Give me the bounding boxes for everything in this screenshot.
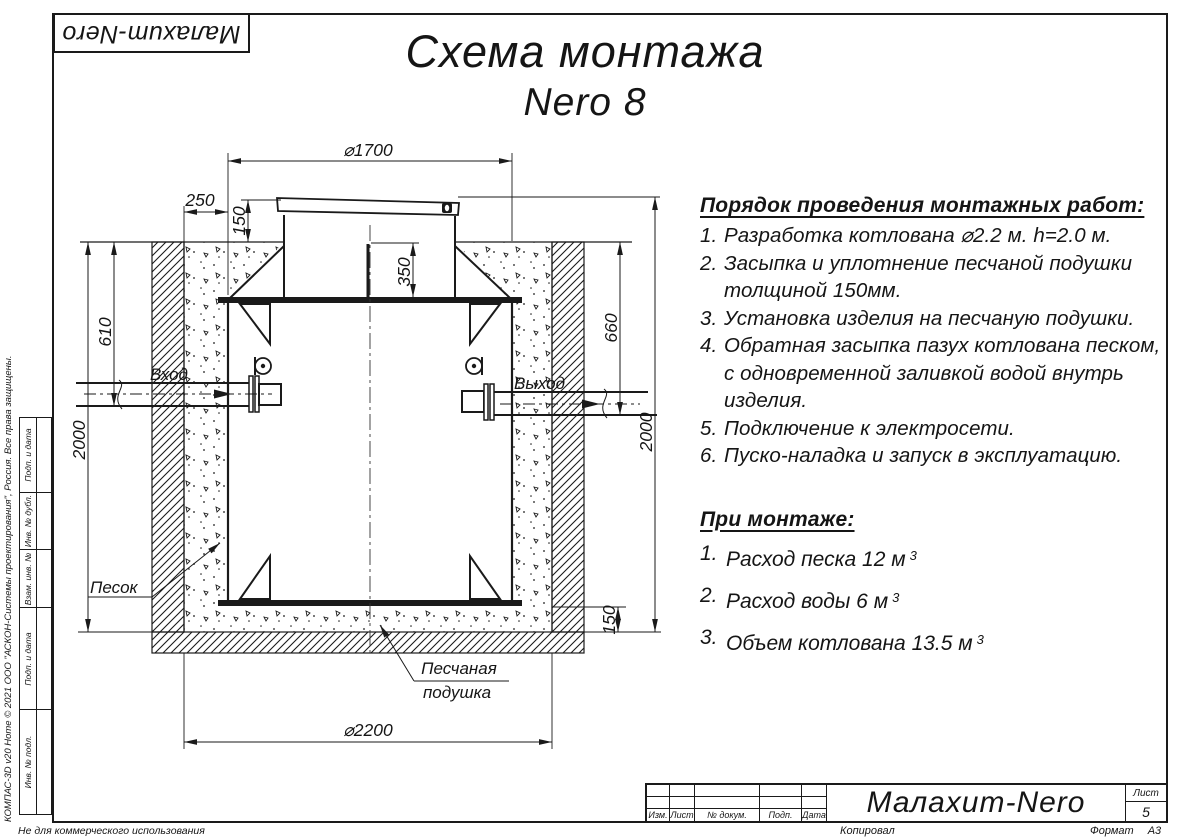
stamp-cell-label: Взам. инв. № [23,552,33,605]
format-note: ФорматА3 [1090,825,1161,837]
col-list: Лист [670,809,694,821]
step-text: с одновременной заливкой водой внутрь [724,360,1172,388]
mount-item-3: 3. Объем котлована 13.5 м3 [700,620,1172,662]
step-number: 6. [700,442,724,470]
step-item-3: 3. Установка изделия на песчаную подушки… [700,305,1172,333]
step-text: толщиной 150мм. [724,277,1172,305]
stamp-cell-label: Инв. № дубл. [23,495,33,547]
col-podp: Подп. [760,809,801,821]
mount-number: 3. [700,620,726,662]
format-value: А3 [1148,825,1161,837]
mount-text: Расход воды 6 м [726,590,888,613]
inlet-label: Вход [150,365,188,384]
sheet-label: Лист [1126,785,1166,802]
sand-label: Песок [90,578,139,597]
dim-neck-height: 150 [229,206,249,235]
stamp-cell: Подп. и дата [19,607,52,710]
mount-item-2: 2. Расход воды 6 м3 [700,578,1172,620]
product-designation: Малахит-Nero [827,785,1125,821]
stamp-cell: Инв. № подл. [19,709,52,815]
left-stamp-column: Подп. и дата Инв. № дубл. Взам. инв. № П… [19,418,52,815]
dim-cushion-thickness: 150 [599,605,619,634]
tank-cover [277,198,459,215]
format-label: Формат [1090,825,1134,837]
dim-inlet-depth: 610 [95,317,115,346]
mount-text: Объем котлована 13.5 м [726,632,973,655]
step-text: изделия. [724,387,1172,415]
tank-body [218,215,522,655]
mount-item-1: 1. Расход песка 12 м3 [700,536,1172,578]
col-data: Дата [802,809,826,821]
lifting-lugs [255,357,482,375]
cushion-label-line2: подушка [423,683,491,702]
sheet-cell: Лист 5 [1125,785,1166,821]
step-text: Подключение к электросети. [724,415,1172,443]
title-block: Изм. Лист № докум. Подп. Дата Малахит-Ne… [645,783,1168,823]
dim-outlet-depth: 660 [601,313,621,342]
col-docnum: № докум. [695,809,759,821]
dim-pit-depth-right: 2000 [636,412,656,452]
step-text: Разработка котлована ⌀2.2 м. h=2.0 м. [724,222,1172,250]
step-number: 3. [700,305,724,333]
cushion-label-line1: Песчаная [421,659,497,678]
mount-number: 2. [700,578,726,620]
dim-backfill-gap: 250 [184,190,214,210]
step-number: 2. [700,250,724,305]
step-number: 1. [700,222,724,250]
drawing-sheet: { "colors": {"ink": "#1a1a1a", "paper": … [0,0,1182,838]
title-block-revision-grid: Изм. Лист № докум. Подп. Дата [647,785,827,821]
non-commercial-note: Не для коммерческого использования [18,825,205,837]
step-number: 4. [700,332,724,415]
col-izm: Изм. [647,809,669,821]
copied-label: Копировал [840,825,895,837]
step-text: Установка изделия на песчаную подушки. [724,305,1172,333]
dim-neck-depth: 350 [394,257,414,286]
dim-pit-depth-left: 2000 [69,420,89,460]
stamp-cell-label: Подп. и дата [23,632,33,685]
instructions-column: Порядок проведения монтажных работ: 1. Р… [700,192,1172,662]
step-item-2: 2. Засыпка и уплотнение песчаной подушки… [700,250,1172,305]
step-item-6: 6. Пуско-наладка и запуск в эксплуатацию… [700,442,1172,470]
step-text: Обратная засыпка пазух котлована песком, [724,332,1172,360]
step-text: Засыпка и уплотнение песчаной подушки [724,250,1172,278]
mount-sup: 3 [910,548,917,563]
mount-number: 1. [700,536,726,578]
step-item-5: 5. Подключение к электросети. [700,415,1172,443]
stamp-cell-label: Подп. и дата [23,428,33,481]
stamp-cell: Подп. и дата [19,417,52,493]
stamp-cell: Инв. № дубл. [19,492,52,550]
step-text: Пуско-наладка и запуск в эксплуатацию. [724,442,1172,470]
mount-heading: При монтаже: [700,506,1172,534]
mount-sup: 3 [892,590,899,605]
mount-sup: 3 [977,632,984,647]
dim-pit-diameter: ⌀2200 [343,720,393,740]
stamp-cell: Взам. инв. № [19,549,52,608]
step-number: 5. [700,415,724,443]
cad-software-note: КОМПАС-3D v20 Home © 2021 ООО "АСКОН-Сис… [3,355,14,822]
step-item-4: 4. Обратная засыпка пазух котлована песк… [700,332,1172,415]
outlet-label: Выход [514,374,565,393]
dim-top-diameter: ⌀1700 [343,140,393,160]
sheet-number: 5 [1126,802,1166,821]
mount-text: Расход песка 12 м [726,548,906,571]
step-item-1: 1. Разработка котлована ⌀2.2 м. h=2.0 м. [700,222,1172,250]
stamp-cell-label: Инв. № подл. [23,736,33,789]
steps-heading: Порядок проведения монтажных работ: [700,192,1172,220]
